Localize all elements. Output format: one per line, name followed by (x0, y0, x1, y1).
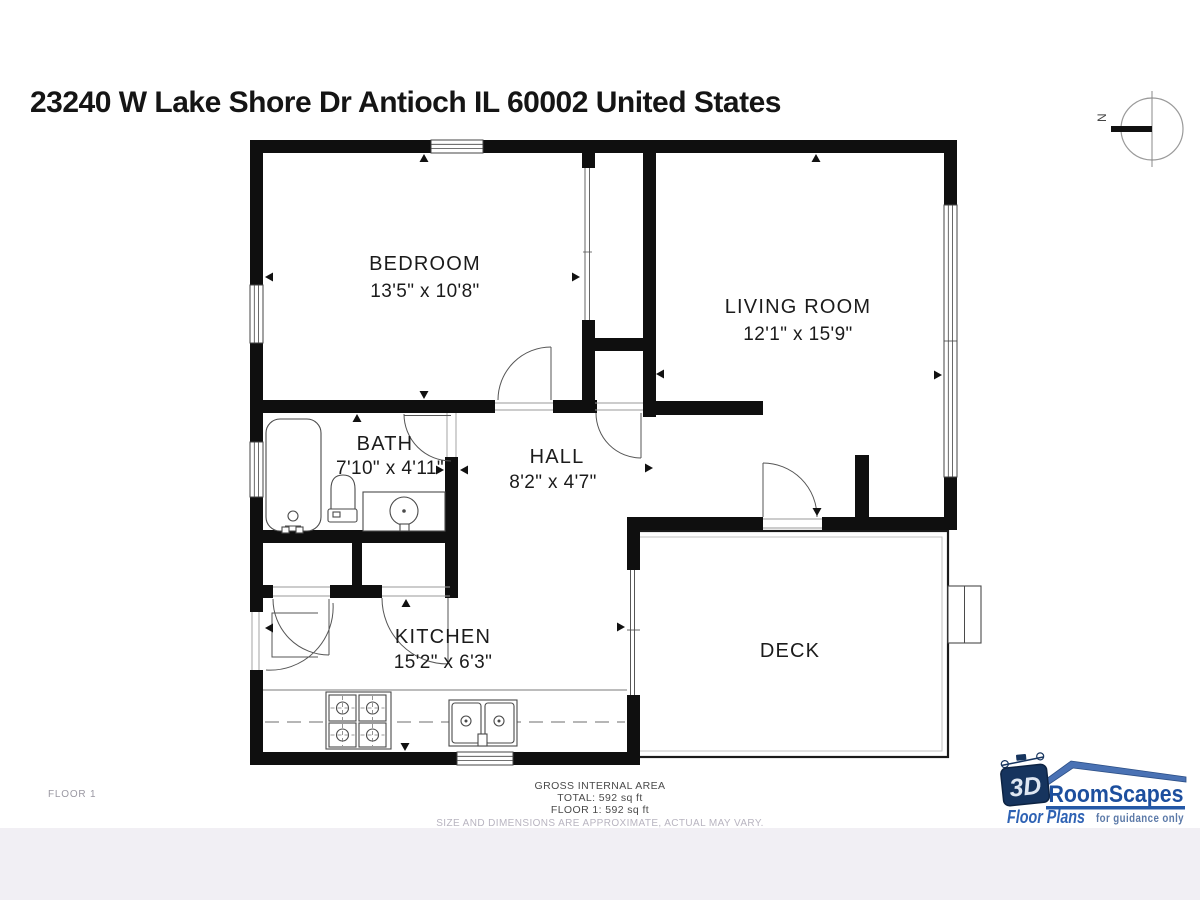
logo-3d-text: 3D (1008, 771, 1043, 802)
room-dims-kitchen: 15'2" x 6'3" (394, 652, 492, 673)
room-label-bedroom: BEDROOM (369, 253, 481, 275)
page-title: 23240 W Lake Shore Dr Antioch IL 60002 U… (30, 86, 781, 119)
room-label-deck: DECK (760, 640, 820, 662)
logo-product-text: Floor Plans (1007, 807, 1085, 827)
window-left-bedroom (250, 285, 263, 343)
room-dims-hall: 8'2" x 4'7" (509, 472, 596, 493)
floor-plan-svg: 23240 W Lake Shore Dr Antioch IL 60002 U… (0, 0, 1200, 900)
compass-north-label: N (1095, 113, 1109, 122)
stove (326, 692, 391, 749)
sink-vanity (363, 492, 445, 531)
kitchen-closet-door-left (273, 599, 329, 655)
room-dims-bedroom: 13'5" x 10'8" (370, 281, 479, 302)
bedroom-door (498, 347, 551, 400)
hall-closet-door (596, 413, 641, 458)
logo-3d-icon: 3D (999, 752, 1050, 807)
floor-number-label: FLOOR 1 (48, 789, 96, 800)
bottom-strip (0, 828, 1200, 900)
wall-stub (855, 455, 869, 530)
compass-icon: N (1095, 91, 1183, 167)
room-label-bath: BATH (357, 433, 414, 455)
floor-plan-page: 23240 W Lake Shore Dr Antioch IL 60002 U… (0, 0, 1200, 900)
kitchen-sink (449, 700, 517, 746)
area-disclaimer: SIZE AND DIMENSIONS ARE APPROXIMATE, ACT… (436, 818, 764, 829)
room-label-kitchen: KITCHEN (395, 626, 491, 648)
roomscapes-logo: 3D RoomScapes Floor Plans for guidance o… (999, 752, 1186, 827)
area-floor: FLOOR 1: 592 sq ft (551, 804, 649, 816)
logo-tagline: for guidance only (1096, 813, 1184, 825)
bathtub (266, 419, 321, 533)
window-left-bath (250, 442, 263, 497)
closet-slider-opening (582, 168, 595, 320)
window-right-living (944, 205, 957, 477)
area-heading: GROSS INTERNAL AREA (535, 780, 666, 792)
window-top-bedroom (431, 140, 483, 153)
toilet (328, 475, 357, 522)
entry-door (266, 603, 333, 670)
deck-door (763, 463, 817, 517)
window-bottom-kitchen (457, 752, 513, 765)
room-label-hall: HALL (530, 446, 585, 468)
window-kitchen-deck (627, 570, 640, 695)
logo-brand-name: RoomScapes (1049, 781, 1184, 808)
deck-steps (948, 586, 981, 643)
area-summary: GROSS INTERNAL AREA TOTAL: 592 sq ft FLO… (436, 780, 764, 829)
room-dims-bath: 7'10" x 4'11" (336, 458, 444, 479)
area-total: TOTAL: 592 sq ft (557, 792, 642, 804)
kitchen-counter (263, 690, 627, 722)
room-label-living-room: LIVING ROOM (725, 296, 872, 318)
room-dims-living-room: 12'1" x 15'9" (743, 324, 852, 345)
